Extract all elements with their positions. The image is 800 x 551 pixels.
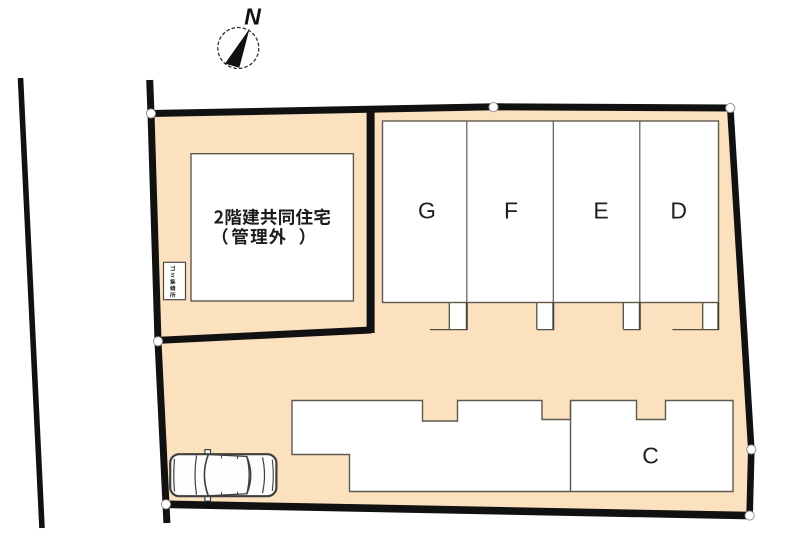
svg-text:C: C xyxy=(642,443,659,469)
svg-text:D: D xyxy=(670,198,687,224)
svg-text:F: F xyxy=(504,198,518,224)
svg-text:G: G xyxy=(418,198,436,224)
svg-text:N: N xyxy=(244,4,261,30)
svg-text:E: E xyxy=(593,198,608,224)
